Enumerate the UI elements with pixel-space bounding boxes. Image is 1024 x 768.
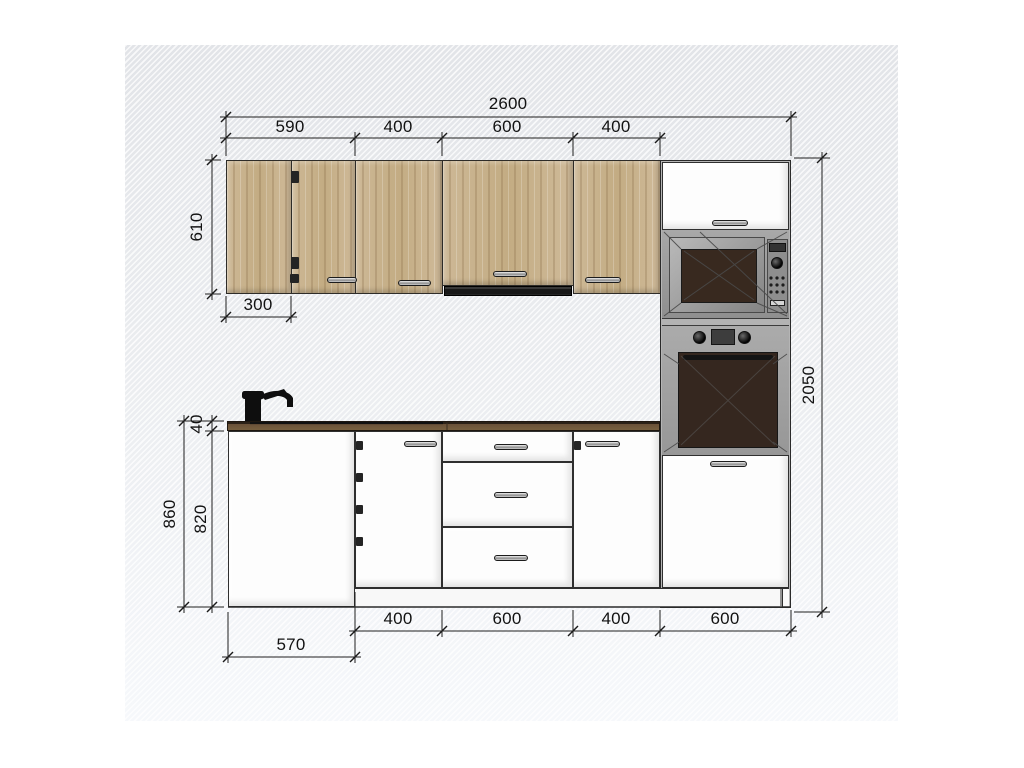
dim-corner-panel-width: 300 (244, 295, 273, 315)
hinge (291, 257, 299, 269)
cooker-hood (444, 286, 572, 296)
door-handle (585, 441, 620, 447)
hinge (356, 473, 363, 482)
microwave-open-button (770, 300, 785, 306)
hinge (574, 441, 581, 450)
microwave-knob (771, 257, 783, 269)
hinge (290, 274, 299, 283)
dim-worktop-thickness: 40 (187, 414, 207, 433)
sink-base-side-panel (228, 431, 355, 607)
door-handle (585, 277, 621, 283)
dim-base-seg-2: 600 (493, 609, 522, 629)
worktop (227, 421, 660, 431)
drawer-handle (494, 555, 528, 561)
door-handle (398, 280, 431, 286)
drawer-handle (494, 492, 528, 498)
dim-upper-seg-1: 590 (276, 117, 305, 137)
dim-side-depth: 570 (277, 635, 306, 655)
dim-base-seg-3: 400 (602, 609, 631, 629)
base-cabinet-door-2 (573, 431, 660, 588)
hinge (356, 441, 363, 450)
tall-cabinet-bottom-door (662, 455, 789, 588)
door-handle (712, 220, 748, 226)
oven-knob-left (693, 331, 706, 344)
oven-door-handle (683, 355, 773, 360)
base-cabinet-door-1 (355, 431, 442, 588)
oven-door (678, 352, 778, 448)
door-handle (404, 441, 437, 447)
dim-base-seg-4: 600 (711, 609, 740, 629)
dim-base-total-height: 860 (160, 500, 180, 529)
dim-upper-seg-3: 600 (493, 117, 522, 137)
wall-cabinet-door-3-hood (442, 160, 574, 286)
wall-corner-side-panel (226, 160, 292, 294)
dim-total-width: 2600 (489, 94, 528, 114)
microwave-display (769, 243, 786, 252)
wall-cabinet-door-4 (573, 160, 661, 294)
door-handle (327, 277, 357, 283)
door-handle (710, 461, 747, 467)
hinge (356, 505, 363, 514)
dim-base-seg-1: 400 (384, 609, 413, 629)
dim-base-cabinet-height: 820 (191, 505, 211, 534)
oven-display (711, 329, 735, 345)
wall-cabinet-door-1 (291, 160, 356, 294)
dim-upper-seg-4: 400 (602, 117, 631, 137)
drawer-handle (494, 444, 528, 450)
microwave-window (681, 249, 757, 303)
wall-cabinet-door-2 (355, 160, 443, 294)
hinge (291, 171, 299, 183)
dim-upper-seg-2: 400 (384, 117, 413, 137)
hinge (356, 537, 363, 546)
oven-knob-right (738, 331, 751, 344)
dim-upper-height: 610 (187, 213, 207, 242)
dim-total-height: 2050 (799, 366, 819, 405)
appliance-divider (662, 318, 789, 326)
plinth (355, 588, 783, 607)
kitchen-elevation-drawing: 2600 590 400 600 400 610 300 40 860 820 … (0, 0, 1024, 768)
door-handle (493, 271, 527, 277)
